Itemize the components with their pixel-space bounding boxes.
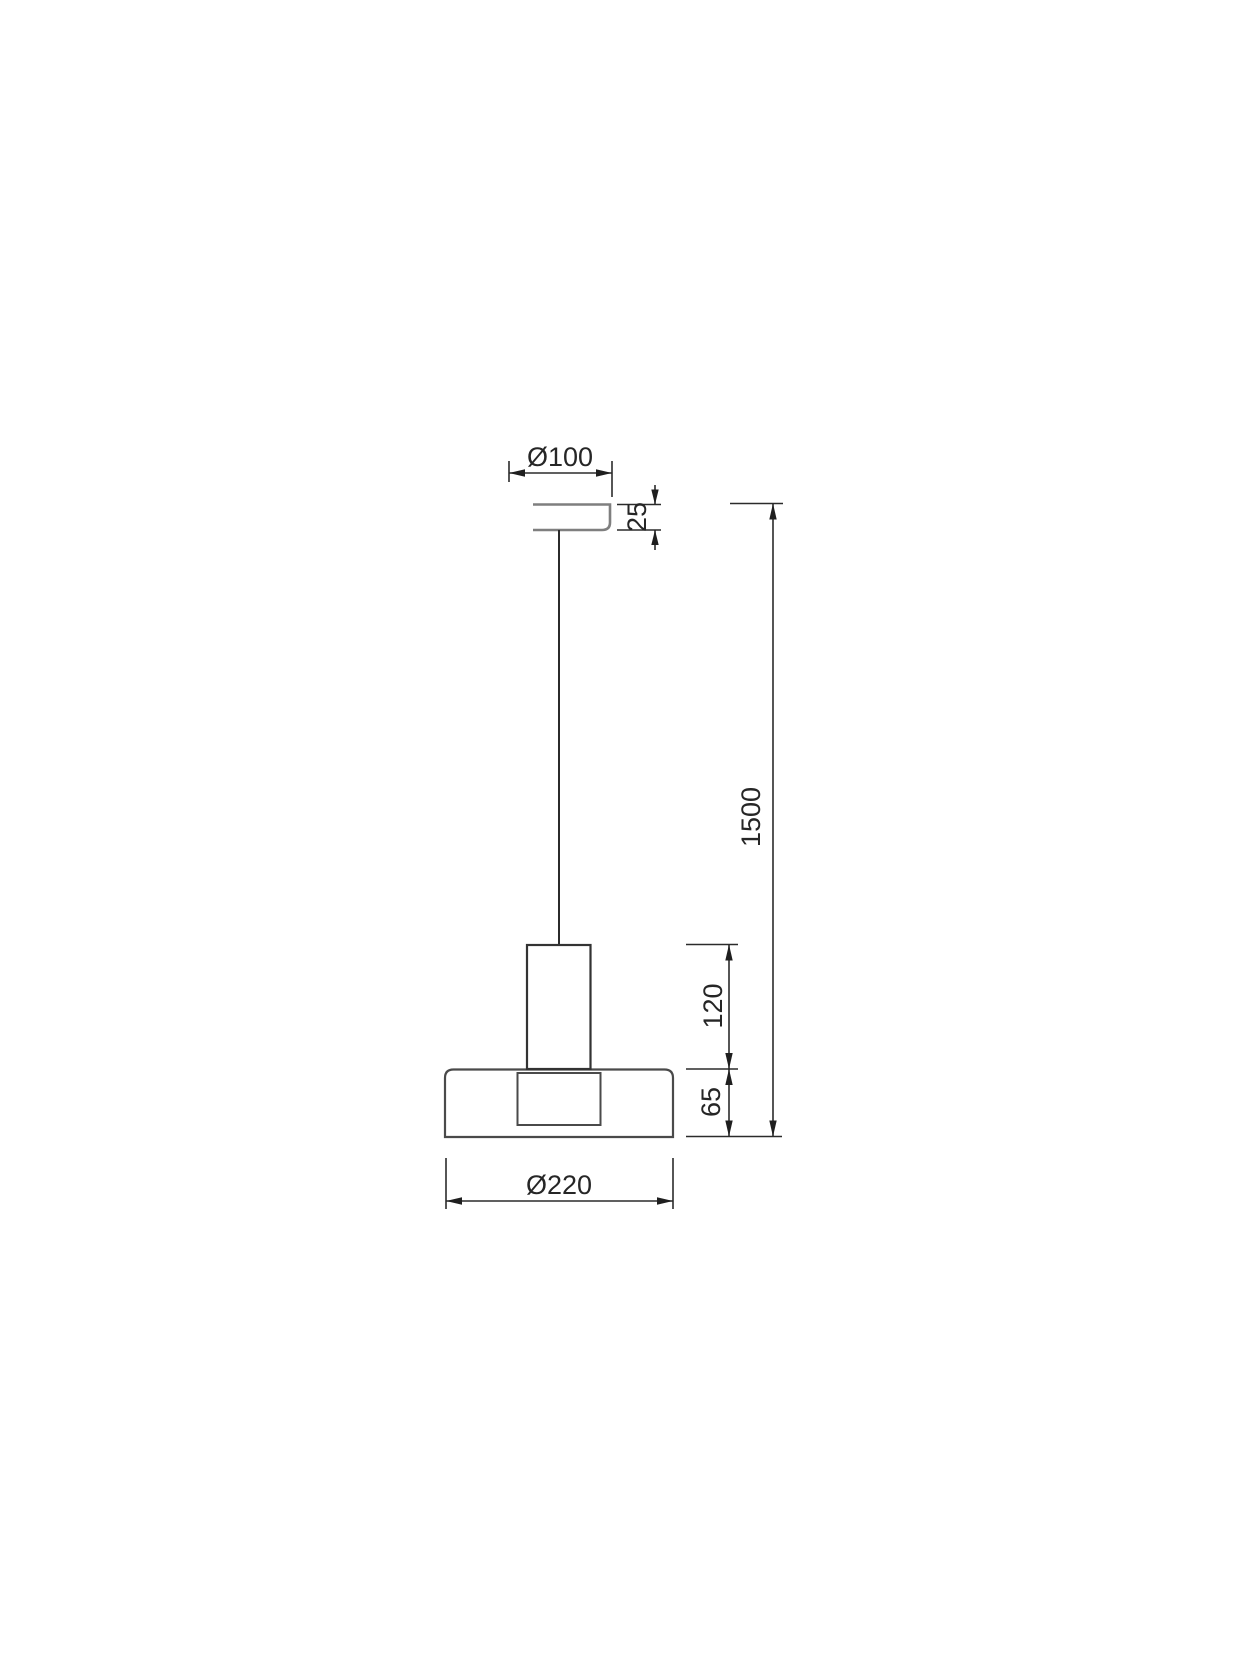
dim-label-shade-height: 65	[696, 1087, 726, 1117]
dim-label-suspension-length: 1500	[736, 787, 766, 847]
dim-shade-diameter: Ø220	[446, 1158, 673, 1209]
arrow-right-icon	[657, 1197, 673, 1204]
arrow-left-icon	[509, 469, 525, 476]
arrow-down-icon	[769, 1121, 776, 1137]
canopy-outline	[533, 505, 610, 531]
arrow-down-icon	[651, 490, 658, 505]
arrow-up-icon	[651, 530, 658, 545]
pendant-lamp-dimension-drawing: Ø100 25 1500 120	[0, 0, 1248, 1663]
dim-label-canopy-height: 25	[622, 502, 652, 532]
dim-canopy-height: 25	[617, 485, 661, 550]
dim-label-shade-diameter: Ø220	[526, 1170, 592, 1200]
dim-socket-height: 120	[686, 945, 738, 1070]
arrow-down-icon	[725, 1053, 732, 1069]
technical-drawing-canvas: Ø100 25 1500 120	[0, 0, 1248, 1663]
arrow-left-icon	[446, 1197, 462, 1204]
dim-suspension-length: 1500	[730, 504, 783, 1137]
arrow-right-icon	[596, 469, 612, 476]
dim-label-canopy-diameter: Ø100	[527, 442, 593, 472]
dim-canopy-diameter: Ø100	[509, 442, 612, 497]
dim-shade-height: 65	[686, 1069, 782, 1137]
lamp-holder-outline	[518, 1073, 601, 1125]
arrow-down-icon	[725, 1121, 732, 1137]
socket-outline	[527, 945, 591, 1069]
dim-label-socket-height: 120	[698, 983, 728, 1028]
arrow-up-icon	[725, 1069, 732, 1085]
arrow-up-icon	[769, 504, 776, 520]
arrow-up-icon	[725, 945, 732, 961]
